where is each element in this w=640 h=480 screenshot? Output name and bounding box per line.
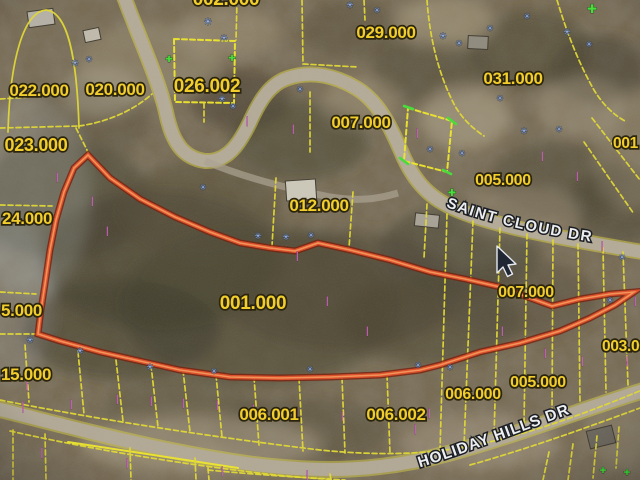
parcel-map[interactable]: ✳✳✳✳✳✳✳✳✳✳✳✳✳✳✳✳✳✳✳✳✳✳✳✳✳✳✳✳✳✳✳✳✳▏▏▏▏▏▏▏… bbox=[0, 0, 640, 480]
grain-overlay bbox=[0, 0, 640, 480]
gis-map-viewport[interactable]: ✳✳✳✳✳✳✳✳✳✳✳✳✳✳✳✳✳✳✳✳✳✳✳✳✳✳✳✳✳✳✳✳✳▏▏▏▏▏▏▏… bbox=[0, 0, 640, 480]
